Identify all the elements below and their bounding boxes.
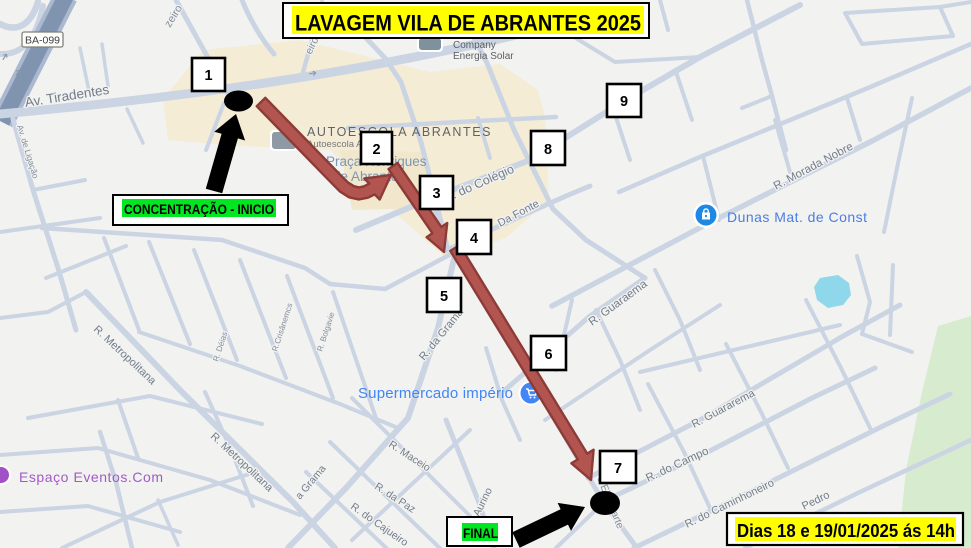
svg-text:Supermercado império: Supermercado império [358,385,513,402]
svg-text:9: 9 [620,94,628,110]
svg-text:Dunas Mat. de Const: Dunas Mat. de Const [727,209,867,225]
svg-text:Company: Company [453,40,496,51]
svg-text:1: 1 [204,68,212,84]
svg-text:8: 8 [544,142,552,158]
svg-text:AUTOESCOLA ABRANTES: AUTOESCOLA ABRANTES [307,125,492,139]
svg-text:6: 6 [544,347,552,363]
svg-text:LAVAGEM VILA DE ABRANTES 2025: LAVAGEM VILA DE ABRANTES 2025 [295,11,641,36]
svg-text:Dias 18 e 19/01/2025 ás 14h: Dias 18 e 19/01/2025 ás 14h [737,521,955,541]
svg-text:3: 3 [432,186,440,202]
svg-text:Espaço Eventos.Com: Espaço Eventos.Com [19,469,163,485]
svg-text:7: 7 [614,461,622,477]
svg-text:CONCENTRAÇÃO - INICIO: CONCENTRAÇÃO - INICIO [124,200,274,217]
svg-text:4: 4 [470,231,478,247]
svg-text:Energia Solar: Energia Solar [453,51,514,62]
svg-text:➔: ➔ [308,68,318,80]
svg-text:2: 2 [372,142,380,158]
svg-text:BA-099: BA-099 [25,35,60,47]
svg-text:5: 5 [440,289,448,305]
svg-text:FINAL: FINAL [463,525,498,541]
